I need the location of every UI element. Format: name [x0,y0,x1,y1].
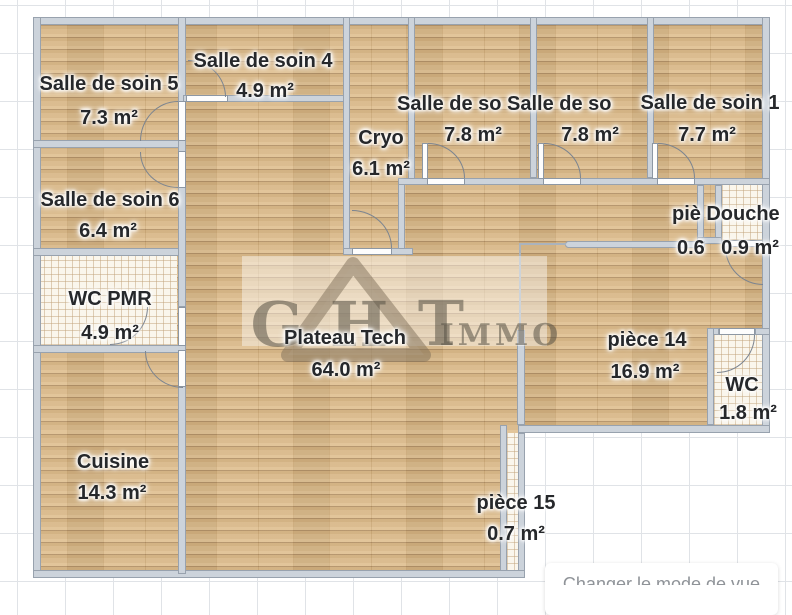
wall-salle5-salle6 [33,140,186,148]
door-leaf-salle6 [178,151,186,188]
door-leaf-salle5 [178,101,186,141]
room-label-plateau-tech: Plateau Tech [284,326,406,350]
room-area-salle-de-soin-6: 6.4 m² [79,219,137,243]
room-area-douche: 0.9 m² [721,236,779,260]
room-label-salle-de-soin-1: Salle de soin 1 [641,91,780,115]
room-area-piece-14: 16.9 m² [611,360,680,384]
room-label-salle-de-soin-3: Salle de so [397,92,502,116]
wall-wc-top-right [755,328,770,335]
room-label-cryo: Cryo [358,126,404,150]
wall-left-column-a [178,17,186,102]
room-area-wc: 1.8 m² [719,401,777,425]
room-label-piece-15: pièce 15 [477,491,556,515]
door-threshold-salle1 [657,178,695,185]
room-area-salle-de-soin-1: 7.7 m² [678,123,736,147]
room-area-plateau-tech: 64.0 m² [312,358,381,382]
room-label-wc-pmr: WC PMR [68,287,151,311]
room-area-salle-de-soin-3: 7.8 m² [444,123,502,147]
room-label-salle-de-soin-4: Salle de soin 4 [194,49,333,73]
door-leaf-wc-pmr [178,307,186,346]
door-leaf-wc [719,328,755,335]
room-label-salle-de-soin-2: Salle de so [507,92,612,116]
room-area-piece-15: 0.7 m² [487,522,545,546]
door-threshold-salle3 [427,178,465,185]
room-area-salle-de-soin-2: 7.8 m² [561,123,619,147]
room-area-salle-de-soin-5: 7.3 m² [80,106,138,130]
room-label-salle-de-soin-6: Salle de soin 6 [41,188,180,212]
outer-wall-top [33,17,770,25]
room-area-piece-small: 0.6 [677,236,705,260]
door-threshold-salle2 [543,178,581,185]
change-view-button-clip: Changer le mode de vue [545,575,778,585]
outer-wall-right-wing-bottom [518,425,770,433]
partition-line-corridor [520,243,566,245]
room-label-douche: Douche [706,202,779,226]
room-label-salle-de-soin-5: Salle de soin 5 [40,72,179,96]
change-view-button[interactable]: Changer le mode de vue [545,563,778,615]
wall-cuisine-right [178,386,186,574]
room-area-cryo: 6.1 m² [352,157,410,181]
room-area-salle-de-soin-4: 4.9 m² [236,79,294,103]
room-area-wc-pmr: 4.9 m² [81,321,139,345]
floor-plan-canvas: G H T IMMO Salle de soin 5 7.3 m² Salle … [0,0,792,615]
wall-wc-left [707,328,714,425]
change-view-button-label: Changer le mode de vue [563,575,760,585]
room-label-piece-14: pièce 14 [608,328,687,352]
room-label-piece-small: piè [672,202,701,226]
room-area-cuisine: 14.3 m² [78,481,147,505]
outer-wall-left [33,17,41,578]
wall-salle6-wcpmr [33,248,186,256]
outer-wall-bottom [33,570,525,578]
wall-cryo-left [343,17,350,255]
watermark-brand-suffix: IMMO [440,321,563,351]
room-label-wc: WC [725,373,758,397]
room-label-cuisine: Cuisine [77,450,149,474]
wall-cryo-right-lower [398,180,405,255]
